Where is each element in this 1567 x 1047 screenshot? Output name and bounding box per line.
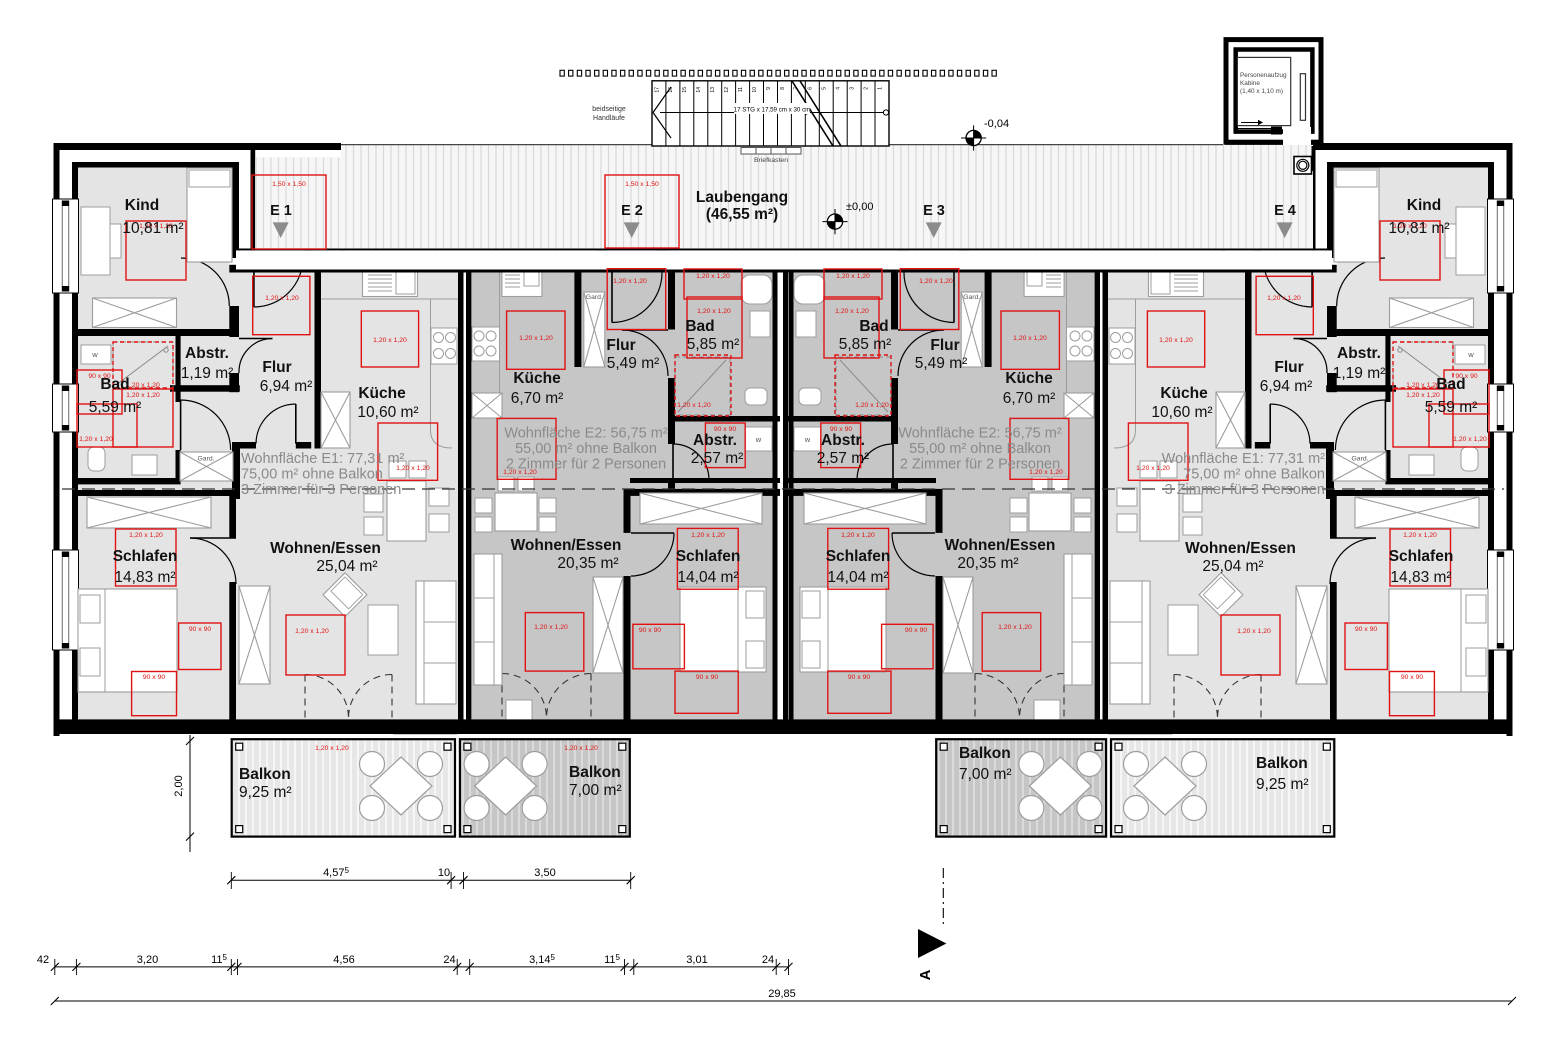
svg-text:1,20 x 1,20: 1,20 x 1,20 — [129, 532, 163, 539]
svg-text:9: 9 — [766, 87, 772, 90]
svg-text:A: A — [917, 969, 934, 980]
svg-text:1,20 x 1,20: 1,20 x 1,20 — [691, 532, 725, 539]
svg-text:E 3: E 3 — [923, 203, 945, 219]
svg-text:2: 2 — [863, 87, 869, 90]
svg-text:1,20 x 1,20: 1,20 x 1,20 — [1453, 436, 1487, 443]
svg-text:1,20 x 1,20: 1,20 x 1,20 — [919, 278, 953, 285]
svg-text:Schlafen: Schlafen — [1389, 548, 1454, 565]
svg-text:7,00 m²: 7,00 m² — [569, 782, 622, 799]
svg-text:15: 15 — [682, 87, 688, 93]
svg-text:Abstr.: Abstr. — [1337, 345, 1381, 362]
svg-text:9,25 m²: 9,25 m² — [239, 784, 292, 801]
svg-text:Wohnfläche E2: 56,75 m²: Wohnfläche E2: 56,75 m² — [898, 426, 1062, 442]
svg-text:14,83 m²: 14,83 m² — [114, 569, 175, 586]
svg-text:5,59 m²: 5,59 m² — [89, 399, 142, 416]
svg-text:3,01: 3,01 — [686, 954, 707, 966]
svg-text:Balkon: Balkon — [239, 766, 291, 783]
svg-text:w: w — [755, 435, 762, 444]
svg-text:12: 12 — [724, 87, 730, 93]
svg-text:1,20 x 1,20: 1,20 x 1,20 — [998, 624, 1032, 631]
svg-text:1,20 x 1,20: 1,20 x 1,20 — [519, 335, 553, 342]
svg-text:9,25 m²: 9,25 m² — [1256, 776, 1309, 793]
svg-text:11: 11 — [738, 87, 744, 92]
svg-text:25,04 m²: 25,04 m² — [316, 558, 377, 575]
svg-text:Laubengang: Laubengang — [696, 189, 788, 206]
svg-text:2 Zimmer für 2 Personen: 2 Zimmer für 2 Personen — [506, 457, 666, 473]
svg-text:14: 14 — [696, 87, 702, 93]
svg-text:w: w — [1467, 350, 1474, 359]
svg-text:beidseitige: beidseitige — [592, 106, 626, 113]
svg-text:Gard.: Gard. — [1352, 456, 1369, 463]
svg-text:1,20 x 1,20: 1,20 x 1,20 — [295, 628, 329, 635]
svg-text:Bad: Bad — [100, 376, 129, 393]
svg-text:Bad: Bad — [685, 318, 714, 335]
svg-text:Bad: Bad — [859, 318, 888, 335]
svg-text:1,20 x 1,20: 1,20 x 1,20 — [696, 273, 730, 280]
svg-text:Bad: Bad — [1436, 376, 1465, 393]
svg-text:Schlafen: Schlafen — [113, 548, 178, 565]
svg-text:42: 42 — [37, 954, 49, 966]
svg-text:25,04 m²: 25,04 m² — [1202, 558, 1263, 575]
svg-text:29,85: 29,85 — [768, 988, 796, 1000]
svg-text:Balkon: Balkon — [959, 745, 1011, 762]
svg-text:90 x 90: 90 x 90 — [1401, 674, 1424, 681]
svg-text:Gard.: Gard. — [586, 294, 603, 301]
svg-text:1,20 x 1,20: 1,20 x 1,20 — [373, 337, 407, 344]
svg-text:5,49 m²: 5,49 m² — [915, 355, 968, 372]
svg-text:1,20 x 1,20: 1,20 x 1,20 — [79, 436, 113, 443]
svg-text:1,20 x 1,20: 1,20 x 1,20 — [126, 392, 160, 399]
svg-text:-0,04: -0,04 — [984, 118, 1009, 130]
svg-text:Balkon: Balkon — [1256, 755, 1308, 772]
svg-text:Kind: Kind — [125, 197, 159, 214]
svg-text:E 2: E 2 — [621, 203, 643, 219]
svg-text:1,20 x 1,20: 1,20 x 1,20 — [697, 308, 731, 315]
svg-text:1,20 x 1,20: 1,20 x 1,20 — [836, 273, 870, 280]
svg-text:1,20 x 1,20: 1,20 x 1,20 — [677, 402, 711, 409]
svg-text:w: w — [804, 435, 811, 444]
svg-text:90 x 90: 90 x 90 — [189, 626, 212, 633]
svg-text:55,00 m² ohne Balkon: 55,00 m² ohne Balkon — [515, 441, 657, 457]
svg-text:2,57 m²: 2,57 m² — [817, 450, 870, 467]
svg-text:2,57 m²: 2,57 m² — [691, 450, 744, 467]
svg-text:Schlafen: Schlafen — [826, 548, 891, 565]
svg-text:Wohnen/Essen: Wohnen/Essen — [1185, 540, 1296, 557]
svg-text:w: w — [91, 350, 98, 359]
svg-text:Wohnen/Essen: Wohnen/Essen — [511, 537, 622, 554]
svg-text:90 x 90: 90 x 90 — [143, 674, 166, 681]
svg-text:10,60 m²: 10,60 m² — [1151, 404, 1212, 421]
svg-text:Wohnfläche E2: 56,75 m²: Wohnfläche E2: 56,75 m² — [504, 426, 668, 442]
svg-text:Gard.: Gard. — [198, 456, 215, 463]
svg-text:Küche: Küche — [358, 385, 406, 402]
svg-text:1,20 x 1,20: 1,20 x 1,20 — [315, 745, 349, 752]
svg-text:Balkon: Balkon — [569, 764, 621, 781]
svg-text:3: 3 — [850, 87, 856, 90]
svg-text:7,00 m²: 7,00 m² — [959, 766, 1012, 783]
svg-text:2,00: 2,00 — [173, 775, 185, 796]
svg-text:Briefkasten: Briefkasten — [754, 157, 788, 164]
svg-text:4: 4 — [836, 87, 842, 90]
svg-text:E 1: E 1 — [270, 203, 292, 219]
svg-text:1,19 m²: 1,19 m² — [1333, 365, 1386, 382]
svg-text:Abstr.: Abstr. — [693, 432, 737, 449]
svg-text:E 4: E 4 — [1274, 203, 1296, 219]
svg-text:Wohnfläche E1: 77,31 m²: Wohnfläche E1: 77,31 m² — [1162, 451, 1326, 467]
svg-text:Gard.: Gard. — [963, 294, 980, 301]
svg-text:±0,00: ±0,00 — [846, 201, 873, 213]
svg-text:24: 24 — [762, 954, 774, 966]
svg-text:6,94 m²: 6,94 m² — [260, 378, 313, 395]
svg-text:4,56: 4,56 — [333, 954, 354, 966]
svg-text:14,04 m²: 14,04 m² — [827, 569, 888, 586]
svg-text:6,70 m²: 6,70 m² — [511, 390, 564, 407]
svg-text:Wohnen/Essen: Wohnen/Essen — [270, 540, 381, 557]
svg-text:(1,40 x 1,10 m): (1,40 x 1,10 m) — [1240, 88, 1283, 95]
svg-text:5,59 m²: 5,59 m² — [1425, 399, 1478, 416]
svg-text:17 STG x 17,59 cm x 30 cm: 17 STG x 17,59 cm x 30 cm — [734, 107, 811, 114]
svg-text:1,20 x 1,20: 1,20 x 1,20 — [1403, 532, 1437, 539]
svg-text:6,70 m²: 6,70 m² — [1003, 390, 1056, 407]
svg-text:14,83 m²: 14,83 m² — [1390, 569, 1451, 586]
svg-text:Wohnen/Essen: Wohnen/Essen — [945, 537, 1056, 554]
svg-text:Flur: Flur — [930, 337, 959, 354]
svg-text:5,85 m²: 5,85 m² — [839, 336, 892, 353]
svg-text:Wohnfläche E1: 77,31 m²: Wohnfläche E1: 77,31 m² — [241, 451, 405, 467]
svg-text:20,35 m²: 20,35 m² — [557, 555, 618, 572]
svg-text:75,00 m² ohne Balkon: 75,00 m² ohne Balkon — [241, 467, 383, 483]
svg-text:17: 17 — [654, 87, 660, 93]
svg-text:90 x 90: 90 x 90 — [639, 627, 662, 634]
svg-text:Flur: Flur — [1274, 359, 1303, 376]
svg-text:Kabine: Kabine — [1240, 80, 1260, 87]
svg-text:Personenaufzug: Personenaufzug — [1240, 72, 1287, 79]
svg-text:1: 1 — [877, 87, 883, 90]
svg-text:2 Zimmer für 2 Personen: 2 Zimmer für 2 Personen — [900, 457, 1060, 473]
svg-text:10,60 m²: 10,60 m² — [357, 404, 418, 421]
svg-text:90 x 90: 90 x 90 — [696, 674, 719, 681]
svg-text:1,20 x 1,20: 1,20 x 1,20 — [1013, 335, 1047, 342]
svg-text:3,20: 3,20 — [137, 954, 158, 966]
svg-text:75,00 m² ohne Balkon: 75,00 m² ohne Balkon — [1183, 467, 1325, 483]
svg-text:Flur: Flur — [606, 337, 635, 354]
svg-text:1,20 x 1,20: 1,20 x 1,20 — [1406, 392, 1440, 399]
svg-text:14,04 m²: 14,04 m² — [677, 569, 738, 586]
svg-text:(46,55 m²): (46,55 m²) — [706, 206, 778, 223]
svg-text:10,81 m²: 10,81 m² — [122, 220, 183, 237]
svg-text:3,50: 3,50 — [534, 867, 555, 879]
svg-text:Küche: Küche — [513, 370, 561, 387]
svg-text:1,20 x 1,20: 1,20 x 1,20 — [534, 624, 568, 631]
svg-text:1,20 x 1,20: 1,20 x 1,20 — [126, 382, 160, 389]
svg-text:1,20 x 1,20: 1,20 x 1,20 — [1406, 382, 1440, 389]
svg-text:3 Zimmer für 3 Personen: 3 Zimmer für 3 Personen — [1165, 482, 1325, 498]
svg-text:5,49 m²: 5,49 m² — [607, 355, 660, 372]
svg-text:1,20 x 1,20: 1,20 x 1,20 — [564, 745, 598, 752]
svg-text:10,81 m²: 10,81 m² — [1388, 220, 1449, 237]
svg-text:55,00 m² ohne Balkon: 55,00 m² ohne Balkon — [909, 441, 1051, 457]
svg-text:5: 5 — [822, 87, 828, 90]
svg-text:Abstr.: Abstr. — [185, 345, 229, 362]
svg-text:13: 13 — [710, 87, 716, 93]
svg-text:1,20 x 1,20: 1,20 x 1,20 — [841, 532, 875, 539]
svg-text:3 Zimmer für 3 Personen: 3 Zimmer für 3 Personen — [241, 482, 401, 498]
svg-text:6,94 m²: 6,94 m² — [1260, 378, 1313, 395]
svg-text:5,85 m²: 5,85 m² — [687, 336, 740, 353]
svg-text:90 x 90: 90 x 90 — [848, 674, 871, 681]
svg-text:24: 24 — [443, 954, 455, 966]
svg-text:1,19 m²: 1,19 m² — [181, 365, 234, 382]
svg-text:Kind: Kind — [1407, 197, 1441, 214]
svg-text:20,35 m²: 20,35 m² — [957, 555, 1018, 572]
svg-text:Küche: Küche — [1005, 370, 1053, 387]
svg-text:1,20 x 1,20: 1,20 x 1,20 — [1267, 295, 1301, 302]
svg-text:90 x 90: 90 x 90 — [905, 627, 928, 634]
svg-text:1,20 x 1,20: 1,20 x 1,20 — [265, 295, 299, 302]
svg-text:Handläufe: Handläufe — [593, 115, 625, 122]
svg-text:1,20 x 1,20: 1,20 x 1,20 — [1159, 337, 1193, 344]
svg-text:Abstr.: Abstr. — [821, 432, 865, 449]
svg-text:6: 6 — [808, 87, 814, 90]
svg-text:1,50 x 1,50: 1,50 x 1,50 — [272, 181, 306, 188]
svg-text:8: 8 — [780, 87, 786, 90]
svg-text:Flur: Flur — [262, 359, 291, 376]
svg-text:1,20 x 1,20: 1,20 x 1,20 — [855, 402, 889, 409]
svg-text:10: 10 — [752, 87, 758, 93]
svg-text:1,20 x 1,20: 1,20 x 1,20 — [613, 278, 647, 285]
svg-text:1,20 x 1,20: 1,20 x 1,20 — [835, 308, 869, 315]
svg-text:1,20 x 1,20: 1,20 x 1,20 — [1237, 628, 1271, 635]
svg-text:1,50 x 1,50: 1,50 x 1,50 — [625, 181, 659, 188]
svg-text:10: 10 — [438, 867, 450, 879]
svg-text:Schlafen: Schlafen — [676, 548, 741, 565]
svg-text:Küche: Küche — [1160, 385, 1208, 402]
svg-text:90 x 90: 90 x 90 — [1355, 626, 1378, 633]
